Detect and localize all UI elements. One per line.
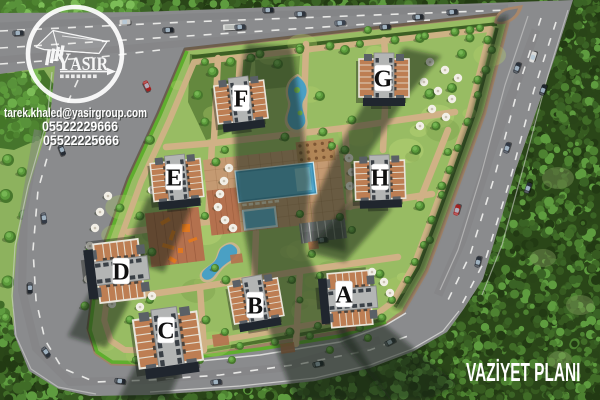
svg-text:D: D [112, 260, 129, 286]
svg-text:H: H [371, 166, 390, 192]
svg-text:C: C [157, 319, 174, 345]
svg-text:G: G [374, 67, 393, 93]
svg-text:E: E [166, 166, 182, 192]
svg-text:B: B [247, 294, 263, 320]
svg-text:A: A [335, 283, 353, 309]
svg-text:tarek.khaled@yasirgroup.com: tarek.khaled@yasirgroup.com [4, 106, 147, 120]
svg-text:VAZİYET PLANI: VAZİYET PLANI [466, 359, 580, 388]
svg-text:05522225666: 05522225666 [43, 133, 119, 148]
svg-text:F: F [234, 87, 249, 113]
svg-text:05522229666: 05522229666 [42, 119, 118, 134]
